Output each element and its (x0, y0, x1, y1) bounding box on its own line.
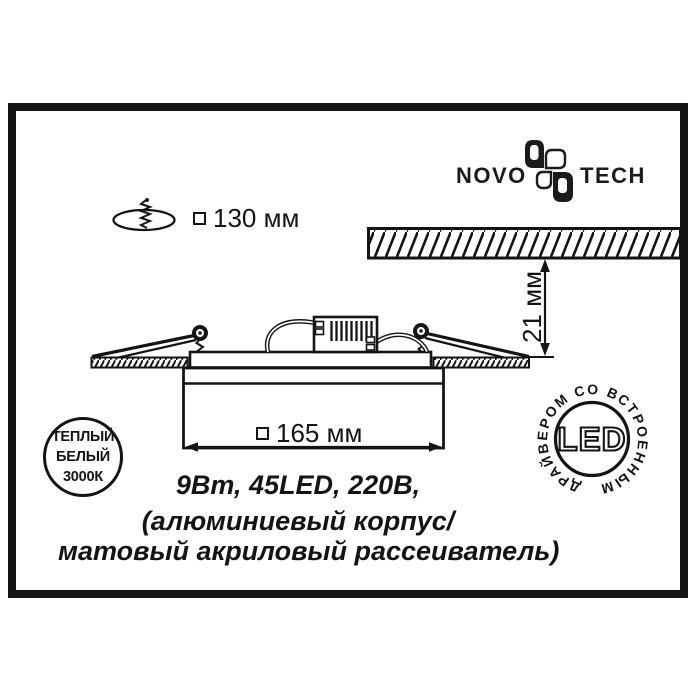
cutout-dimension-label: 130 мм (193, 205, 299, 231)
ceiling-panel-hatched (369, 229, 681, 259)
warm-white-line1: ТЕПЛЫЙ (52, 427, 115, 447)
width-dimension-value: 165 мм (276, 420, 362, 446)
spec-text-line3: матовый акриловый рассеиватель) (58, 537, 538, 567)
cutout-hole-screw-icon (114, 198, 175, 230)
logo-text-novo: NOVO (456, 165, 527, 187)
clip-pivot-left-icon (194, 327, 206, 339)
cutout-dimension-value: 130 мм (213, 205, 299, 231)
mounting-strip-right (434, 358, 530, 368)
clip-pivot-right-icon (415, 325, 427, 337)
warm-white-line2: БЕЛЫЙ (56, 447, 110, 467)
led-driver-badge: LED ДРАЙВЕРОМ СО ВСТРОЕННЫМ (531, 378, 655, 502)
spec-text-line1: 9Вт, 45LED, 220В, (58, 471, 538, 501)
logo-text-tech: TECH (580, 165, 646, 187)
square-symbol-icon (256, 427, 269, 440)
mounting-strip-left (92, 358, 188, 368)
fixture-recessed-flange (190, 352, 431, 368)
driver-wire-left (267, 321, 313, 352)
depth-dimension-label: 21 мм (518, 262, 546, 352)
width-dimension-label: 165 мм (256, 420, 362, 446)
fixture-cross-section-drawing (0, 0, 700, 700)
led-driver-box (314, 317, 377, 352)
led-badge-center-text: LED (558, 421, 627, 458)
novotech-flower-icon (524, 138, 576, 204)
square-symbol-icon (193, 212, 206, 225)
spec-text-line2: (алюминиевый корпус/ (58, 507, 538, 537)
